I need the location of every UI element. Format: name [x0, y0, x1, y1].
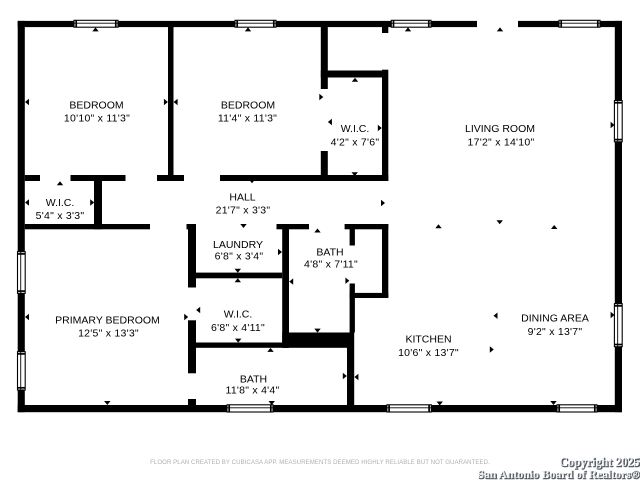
svg-text:5'4" x 3'3": 5'4" x 3'3" [36, 210, 85, 222]
svg-text:PRIMARY BEDROOM: PRIMARY BEDROOM [55, 314, 160, 326]
svg-text:6'8" x 3'4": 6'8" x 3'4" [215, 251, 264, 263]
svg-text:BATH: BATH [316, 246, 343, 258]
svg-text:4'2" x 7'6": 4'2" x 7'6" [331, 137, 380, 149]
svg-text:LAUNDRY: LAUNDRY [213, 239, 263, 251]
svg-text:BATH: BATH [240, 373, 267, 385]
svg-text:17'2" x 14'10": 17'2" x 14'10" [468, 137, 535, 149]
svg-text:4'8" x 7'11": 4'8" x 7'11" [304, 259, 358, 271]
svg-text:KITCHEN: KITCHEN [405, 333, 451, 345]
svg-text:W.I.C.: W.I.C. [224, 308, 253, 320]
svg-text:21'7" x 3'3": 21'7" x 3'3" [216, 205, 271, 217]
svg-text:HALL: HALL [229, 191, 255, 203]
svg-text:11'4" x 11'3": 11'4" x 11'3" [218, 113, 277, 125]
svg-text:San Antonio Board of Realtors®: San Antonio Board of Realtors® [477, 468, 639, 480]
svg-text:FLOOR PLAN CREATED BY CUBICASA: FLOOR PLAN CREATED BY CUBICASA APP. MEAS… [150, 459, 490, 466]
svg-text:BEDROOM: BEDROOM [69, 99, 123, 111]
svg-text:10'6" x 13'7": 10'6" x 13'7" [398, 347, 459, 359]
svg-text:BEDROOM: BEDROOM [221, 99, 275, 111]
svg-text:10'10" x 11'3": 10'10" x 11'3" [64, 113, 130, 125]
svg-text:LIVING ROOM: LIVING ROOM [465, 123, 535, 135]
svg-text:9'2" x 13'7": 9'2" x 13'7" [528, 326, 583, 338]
svg-text:12'5" x 13'3": 12'5" x 13'3" [78, 328, 139, 340]
svg-text:W.I.C.: W.I.C. [46, 197, 75, 209]
svg-text:6'8" x 4'11": 6'8" x 4'11" [211, 322, 265, 334]
svg-text:W.I.C.: W.I.C. [341, 123, 370, 135]
svg-text:11'8" x 4'4": 11'8" x 4'4" [226, 385, 280, 397]
svg-text:DINING AREA: DINING AREA [521, 312, 589, 324]
